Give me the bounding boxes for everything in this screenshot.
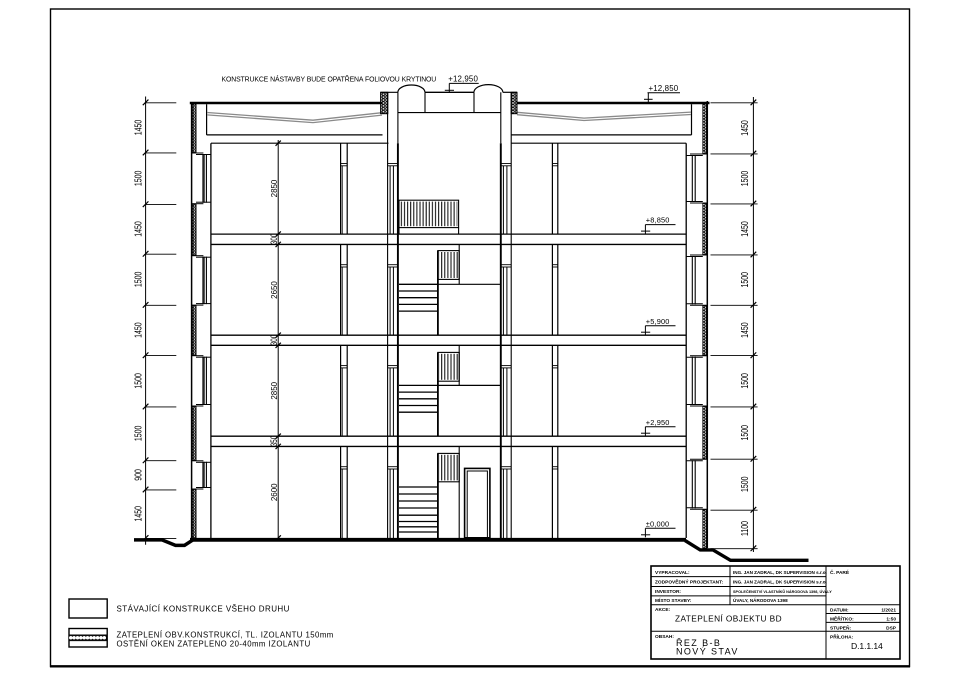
svg-text:±0,000: ±0,000 xyxy=(646,519,669,528)
svg-text:ÚVALY, NÁRODOVA 1398: ÚVALY, NÁRODOVA 1398 xyxy=(733,597,788,603)
svg-text:INVESTOR:: INVESTOR: xyxy=(655,589,681,595)
svg-text:Č. PARÉ: Č. PARÉ xyxy=(830,568,850,576)
svg-text:MÍSTO STAVBY:: MÍSTO STAVBY: xyxy=(655,596,692,604)
svg-text:1500: 1500 xyxy=(132,272,144,288)
svg-text:2600: 2600 xyxy=(270,483,279,501)
svg-text:ZODPOVĚDNÝ PROJEKTANT:: ZODPOVĚDNÝ PROJEKTANT: xyxy=(655,578,724,586)
svg-text:1450: 1450 xyxy=(132,221,144,237)
svg-text:300: 300 xyxy=(269,334,279,345)
svg-text:ZATEPLENÍ OBV.KONSTRUKCÍ, TL.: ZATEPLENÍ OBV.KONSTRUKCÍ, TL. IZOLANTU 1… xyxy=(117,630,334,639)
svg-text:ZATEPLENÍ OBJEKTU BD: ZATEPLENÍ OBJEKTU BD xyxy=(675,614,782,624)
svg-text:1450: 1450 xyxy=(739,221,751,237)
svg-text:+2,950: +2,950 xyxy=(646,418,670,427)
svg-text:1450: 1450 xyxy=(739,120,751,136)
svg-text:1500: 1500 xyxy=(739,272,751,288)
svg-text:1450: 1450 xyxy=(132,120,144,136)
svg-text:DATUM:: DATUM: xyxy=(830,608,849,614)
svg-text:+12,850: +12,850 xyxy=(649,84,679,93)
svg-text:NOVÝ STAV: NOVÝ STAV xyxy=(676,647,739,657)
svg-text:+5,900: +5,900 xyxy=(646,317,670,326)
svg-text:1500: 1500 xyxy=(739,373,751,389)
svg-text:1500: 1500 xyxy=(132,426,144,442)
svg-text:1450: 1450 xyxy=(739,322,751,338)
svg-text:STÁVAJÍCÍ KONSTRUKCE VŠEHO DRU: STÁVAJÍCÍ KONSTRUKCE VŠEHO DRUHU xyxy=(117,604,290,613)
svg-text:KONSTRUKCE NÁSTAVBY BUDE OPATŘ: KONSTRUKCE NÁSTAVBY BUDE OPATŘENA FOLIOV… xyxy=(222,74,437,83)
svg-text:1500: 1500 xyxy=(739,425,751,441)
svg-text:1100: 1100 xyxy=(739,521,751,536)
svg-text:DSP: DSP xyxy=(886,625,897,631)
svg-text:1450: 1450 xyxy=(132,322,144,338)
svg-text:350: 350 xyxy=(269,435,279,446)
svg-text:+12,950: +12,950 xyxy=(448,74,478,83)
svg-text:OSTĚNÍ OKEN ZATEPLENO 20-40mm: OSTĚNÍ OKEN ZATEPLENO 20-40mm IZOLANTU xyxy=(117,640,311,649)
svg-text:OBSAH:: OBSAH: xyxy=(655,634,674,640)
svg-text:2850: 2850 xyxy=(270,179,279,197)
svg-text:VYPRACOVAL:: VYPRACOVAL: xyxy=(655,570,690,576)
svg-text:1500: 1500 xyxy=(132,171,144,187)
svg-text:PŘÍLOHA:: PŘÍLOHA: xyxy=(830,633,854,641)
svg-text:SPOLEČENSTVÍ VLASTNÍKŮ NÁRODOV: SPOLEČENSTVÍ VLASTNÍKŮ NÁRODOVA 1398, ÚV… xyxy=(733,589,832,594)
svg-text:900: 900 xyxy=(132,469,144,481)
svg-text:ING. JAN ZADRAL, DK SUPERVISIO: ING. JAN ZADRAL, DK SUPERVISION s.r.o. xyxy=(733,570,827,575)
svg-text:D.1.1.14: D.1.1.14 xyxy=(851,641,883,651)
svg-text:300: 300 xyxy=(269,233,279,244)
svg-text:2650: 2650 xyxy=(270,281,279,299)
svg-text:2850: 2850 xyxy=(270,381,279,399)
svg-text:ING. JAN ZADRAL, DK SUPERVISIO: ING. JAN ZADRAL, DK SUPERVISION s.r.o. xyxy=(733,580,827,585)
svg-text:1/2021: 1/2021 xyxy=(881,608,896,614)
svg-text:1:50: 1:50 xyxy=(886,617,896,623)
svg-text:1500: 1500 xyxy=(739,476,751,492)
svg-text:STUPEŇ:: STUPEŇ: xyxy=(830,623,851,631)
svg-text:MĚŘÍTKO:: MĚŘÍTKO: xyxy=(830,615,854,623)
svg-text:1500: 1500 xyxy=(132,373,144,389)
svg-text:+8,850: +8,850 xyxy=(646,216,670,225)
svg-text:AKCE:: AKCE: xyxy=(655,607,671,613)
svg-text:1500: 1500 xyxy=(739,171,751,187)
svg-text:1450: 1450 xyxy=(132,506,144,522)
